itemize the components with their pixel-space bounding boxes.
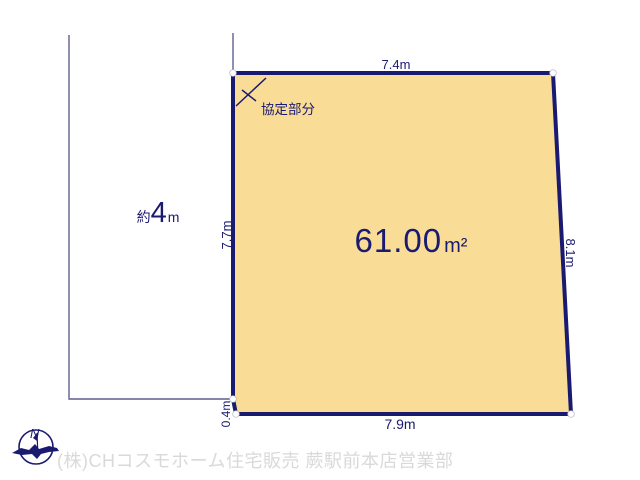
- dimension-left: 7.7m: [219, 221, 234, 250]
- agreement-label: 協定部分: [261, 102, 315, 117]
- dimension-top: 7.4m: [382, 57, 411, 72]
- vertex-dot: [550, 70, 557, 77]
- dimension-left-offset: 0.4m: [219, 401, 233, 428]
- vertex-dot: [233, 411, 240, 418]
- dimension-right: 8.1m: [563, 239, 578, 268]
- road-width-label: 約 4 m: [128, 197, 188, 230]
- site-plan-stage: 7.4m 8.1m 7.9m 7.7m 0.4m 協定部分 61.00 m² 約…: [0, 0, 640, 480]
- road-width-unit: m: [168, 209, 180, 225]
- vertex-dot: [230, 70, 237, 77]
- dimension-bottom: 7.9m: [384, 416, 415, 432]
- road-width-value: 4: [151, 197, 167, 230]
- plot-area-label: 61.00 m²: [336, 222, 486, 260]
- vertex-dot: [568, 411, 575, 418]
- road-width-approx: 約: [137, 207, 151, 227]
- compass-north-icon: N: [10, 423, 62, 473]
- footer-company-text: (株)CHコスモホーム住宅販売 蕨駅前本店営業部: [57, 447, 453, 473]
- plot-area-value: 61.00: [355, 222, 443, 260]
- plot-area-unit: m²: [444, 235, 467, 258]
- site-plan-svg: 7.4m 8.1m 7.9m 7.7m 0.4m 協定部分: [0, 0, 640, 480]
